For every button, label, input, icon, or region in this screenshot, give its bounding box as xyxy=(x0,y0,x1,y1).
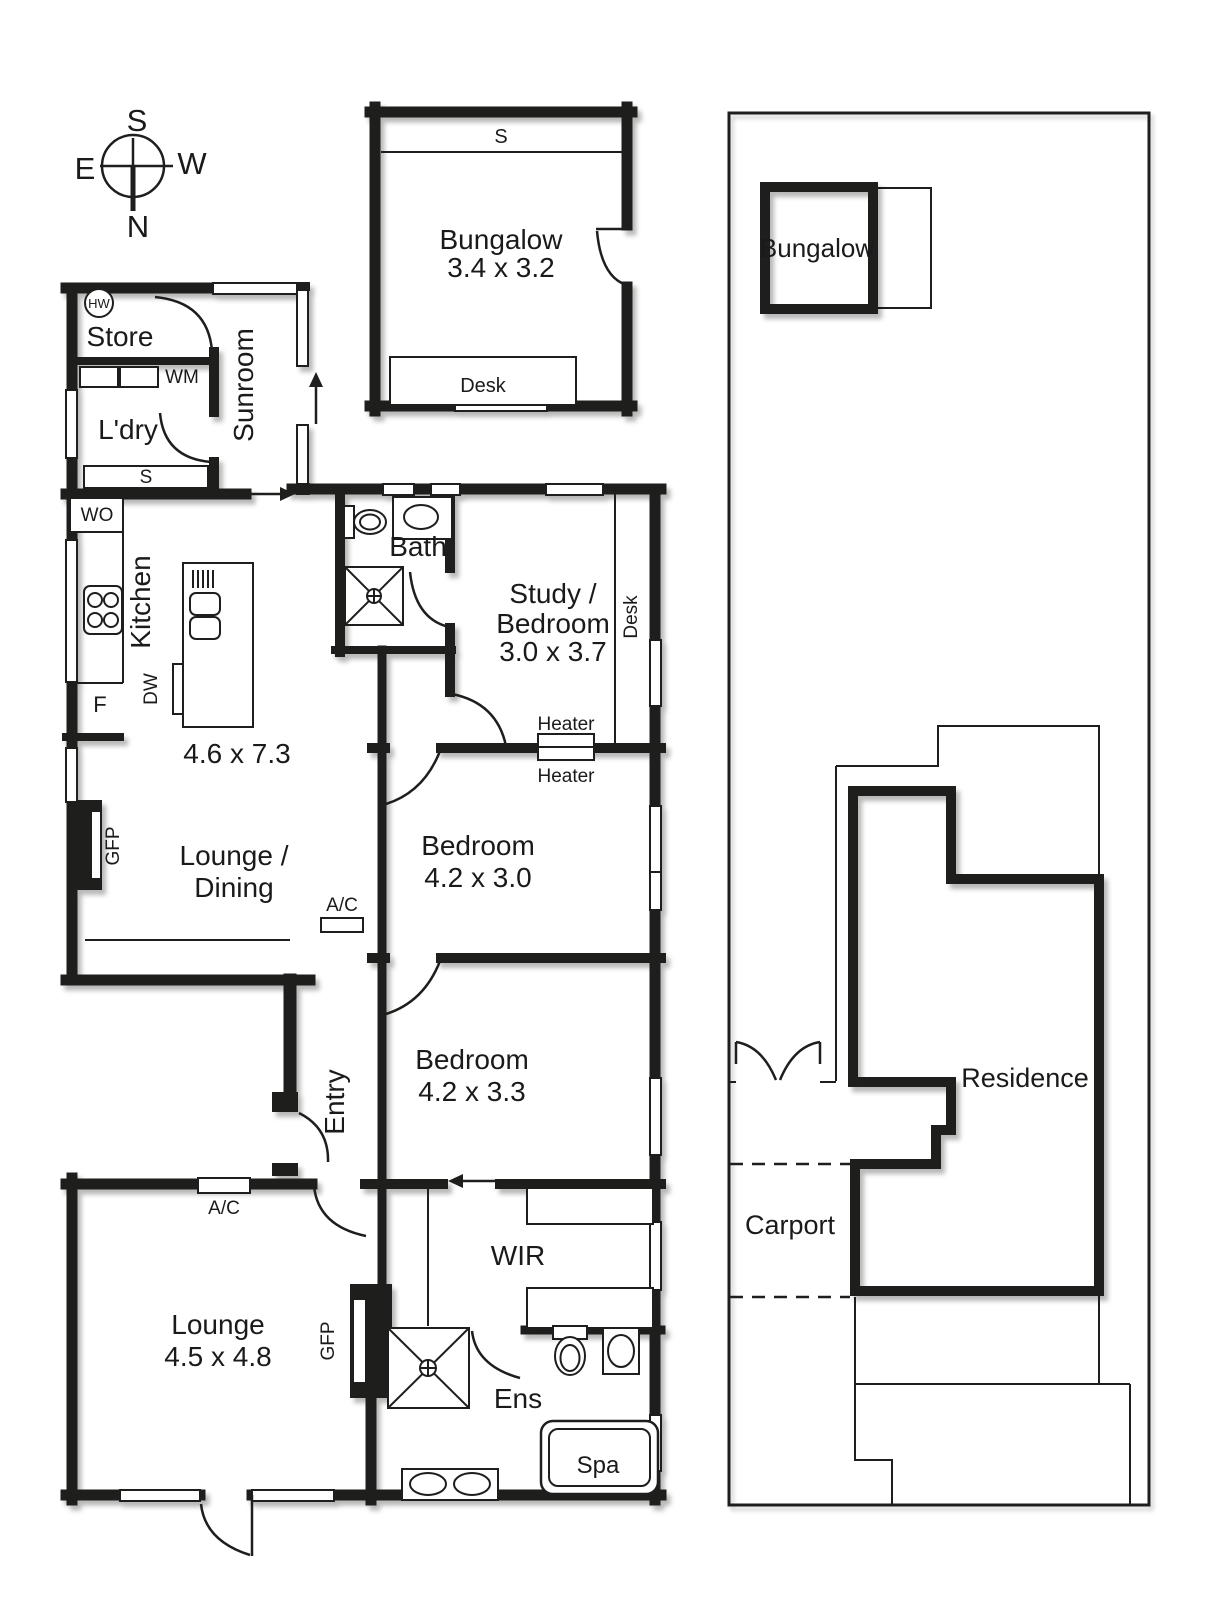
wm-label: WM xyxy=(165,367,199,388)
window xyxy=(66,748,77,802)
site-rooflines xyxy=(729,726,1130,1504)
spa-label: Spa xyxy=(577,1452,620,1479)
compass-east: E xyxy=(75,151,96,186)
robe-shelf xyxy=(527,1188,653,1224)
site-plan: Bungalow Residence Carport xyxy=(729,113,1149,1505)
ens-label: Ens xyxy=(494,1383,542,1414)
entry-label: Entry xyxy=(319,1069,350,1134)
floor-plan-page: S E W N S Bungalow 3.4 x 3.2 Desk xyxy=(0,0,1226,1600)
site-bungalow-annex xyxy=(873,188,931,308)
bed1-label: Bedroom xyxy=(421,830,535,861)
bungalow-name-label: Bungalow xyxy=(440,224,564,255)
sink-icon xyxy=(190,617,220,639)
wir-label: WIR xyxy=(491,1240,545,1271)
wo-label: WO xyxy=(81,505,114,526)
door-arc xyxy=(452,694,506,746)
fridge-label: F xyxy=(93,692,106,717)
window xyxy=(66,390,77,458)
window xyxy=(650,1222,661,1290)
compass-west: W xyxy=(177,146,207,181)
site-bungalow-label: Bungalow xyxy=(760,233,874,263)
site-carport-label: Carport xyxy=(745,1210,836,1240)
bed1-dims-label: 4.2 x 3.0 xyxy=(424,862,531,893)
door-arc xyxy=(386,751,440,804)
washing-machine-icon xyxy=(120,367,158,387)
hw-label: HW xyxy=(88,296,110,311)
lounge-dims-label: 4.5 x 4.8 xyxy=(164,1341,271,1372)
window xyxy=(252,1490,334,1501)
window xyxy=(650,806,661,910)
bungalow-plan-interior: S Bungalow 3.4 x 3.2 Desk xyxy=(381,126,626,405)
site-boundary xyxy=(729,113,1149,1505)
site-residence-label: Residence xyxy=(961,1063,1089,1093)
dw-label: DW xyxy=(141,673,162,705)
door-arc xyxy=(201,1504,250,1555)
robe-shelf xyxy=(527,1288,653,1328)
door-arc xyxy=(597,231,626,285)
compass-rose-icon: S E W N xyxy=(75,103,208,244)
ac-unit xyxy=(321,918,363,932)
kitchen-dims-label: 4.6 x 7.3 xyxy=(183,738,290,769)
shelf-label: S xyxy=(140,467,153,488)
dishwasher-icon xyxy=(173,664,183,714)
door-arc xyxy=(410,572,449,627)
door-arc xyxy=(472,1331,520,1378)
desk-label: Desk xyxy=(621,595,642,639)
toilet-icon xyxy=(344,506,354,538)
ac-unit xyxy=(198,1178,250,1193)
laundry-label: L'dry xyxy=(98,414,158,445)
gfp-label-2: GFP xyxy=(318,1321,339,1360)
bed2-label: Bedroom xyxy=(415,1044,529,1075)
sunroom-label: Sunroom xyxy=(228,328,259,442)
door-arc xyxy=(386,961,440,1014)
study-dims-label: 3.0 x 3.7 xyxy=(499,636,606,667)
entry-arrow-up-icon xyxy=(309,372,323,424)
bungalow-desk-label: Desk xyxy=(460,375,507,397)
door-arc xyxy=(155,297,212,351)
window xyxy=(650,640,661,706)
window xyxy=(383,484,414,495)
heater-label-2: Heater xyxy=(537,766,595,787)
window xyxy=(546,484,603,495)
bed2-dims-label: 4.2 x 3.3 xyxy=(418,1076,525,1107)
gate-arc xyxy=(780,1042,820,1080)
heater-label-1: Heater xyxy=(537,714,595,735)
ac-label-2: A/C xyxy=(208,1198,240,1219)
lounge-dining-label-2: Dining xyxy=(194,872,273,903)
door-arc xyxy=(314,1186,366,1236)
washing-machine-icon xyxy=(80,367,118,387)
lounge-label: Lounge xyxy=(171,1309,264,1340)
floor-plan-canvas: S E W N S Bungalow 3.4 x 3.2 Desk xyxy=(0,0,1226,1600)
island-bench xyxy=(173,563,253,727)
bungalow-shelf-label: S xyxy=(494,126,507,148)
compass-north: N xyxy=(127,209,149,244)
lounge-dining-label-1: Lounge / xyxy=(180,840,289,871)
site-residence-outline xyxy=(853,791,1099,1291)
entry-arrow-left-icon xyxy=(448,1174,500,1188)
gfp-label-1: GFP xyxy=(103,826,124,865)
site-gate xyxy=(736,1042,820,1080)
door-arc xyxy=(160,413,211,462)
gate-arc xyxy=(736,1042,776,1080)
heater-unit xyxy=(538,734,594,760)
sink-icon xyxy=(190,593,220,615)
kitchen-label: Kitchen xyxy=(125,555,156,648)
compass-south: S xyxy=(127,103,148,138)
window xyxy=(431,484,460,495)
cooktop-icon xyxy=(84,586,122,634)
study-label-1: Study / xyxy=(509,578,596,609)
bath-label: Bath xyxy=(389,531,447,562)
window xyxy=(120,1490,200,1501)
window xyxy=(66,540,77,682)
ac-label-1: A/C xyxy=(326,895,358,916)
window xyxy=(650,1078,661,1155)
bungalow-dims-label: 3.4 x 3.2 xyxy=(447,252,554,283)
store-label: Store xyxy=(87,321,154,352)
study-label-2: Bedroom xyxy=(496,608,610,639)
